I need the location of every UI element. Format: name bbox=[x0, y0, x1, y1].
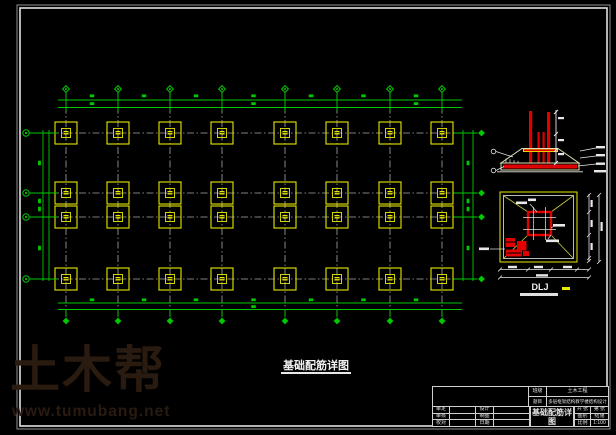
yellow-dash-mark bbox=[562, 287, 570, 290]
tb-draft-label: 制图 bbox=[476, 414, 493, 419]
tb-sign-cell bbox=[494, 414, 529, 419]
tb-proof-label: 校对 bbox=[433, 420, 449, 426]
tb-check-label: 审核 bbox=[433, 414, 449, 419]
tb-topic-label: 题目 bbox=[529, 397, 546, 406]
tb-sheets-label: 共 张 bbox=[575, 407, 590, 413]
footing-plan-detail bbox=[479, 192, 603, 280]
dimension-top bbox=[58, 86, 462, 111]
tb-sign-cell bbox=[450, 407, 475, 413]
tb-date-label: 日期 bbox=[476, 420, 493, 426]
tb-sign-cell bbox=[450, 414, 475, 419]
plan-title-underline bbox=[281, 372, 351, 374]
footing-section-detail bbox=[491, 110, 606, 173]
tb-drawing-title: 基础配筋详图 bbox=[531, 407, 573, 426]
tb-category-label: 图别 bbox=[575, 414, 590, 419]
tb-sign-cell bbox=[494, 420, 529, 426]
drawing-sheet: 基础配筋详图 DLJ 班级 土木工程 题目 多层框架结构教学楼结构设计 审定 设… bbox=[0, 0, 616, 435]
detail-plan-label-underline bbox=[520, 293, 558, 296]
tb-sign-cell bbox=[494, 407, 529, 413]
tb-class-label: 班级 bbox=[529, 387, 546, 396]
watermark-url: www.tumubang.net bbox=[12, 403, 170, 421]
tb-sign-cell bbox=[450, 420, 475, 426]
tb-design-label: 设计 bbox=[476, 407, 493, 413]
tb-stamp-cell bbox=[433, 387, 528, 406]
dimension-right bbox=[454, 130, 485, 283]
tb-page-label: 第 张 bbox=[591, 407, 608, 413]
dimension-left bbox=[23, 130, 58, 282]
tb-topic-value: 多层框架结构教学楼结构设计 bbox=[547, 397, 608, 406]
tb-scale-value: 1:100 bbox=[591, 420, 608, 426]
title-block: 班级 土木工程 题目 多层框架结构教学楼结构设计 审定 设计 审核 制图 校对 … bbox=[432, 386, 609, 427]
tb-scale-label: 比例 bbox=[575, 420, 590, 426]
pad-footings bbox=[55, 122, 453, 290]
watermark-brand: 土木帮 bbox=[10, 344, 166, 396]
tb-class-value: 土木工程 bbox=[547, 387, 608, 396]
dimension-bottom bbox=[58, 298, 462, 324]
detail-plan-label: DLJ bbox=[522, 282, 558, 292]
tb-approve-label: 审定 bbox=[433, 407, 449, 413]
tb-category-value: 结施 bbox=[591, 414, 608, 419]
